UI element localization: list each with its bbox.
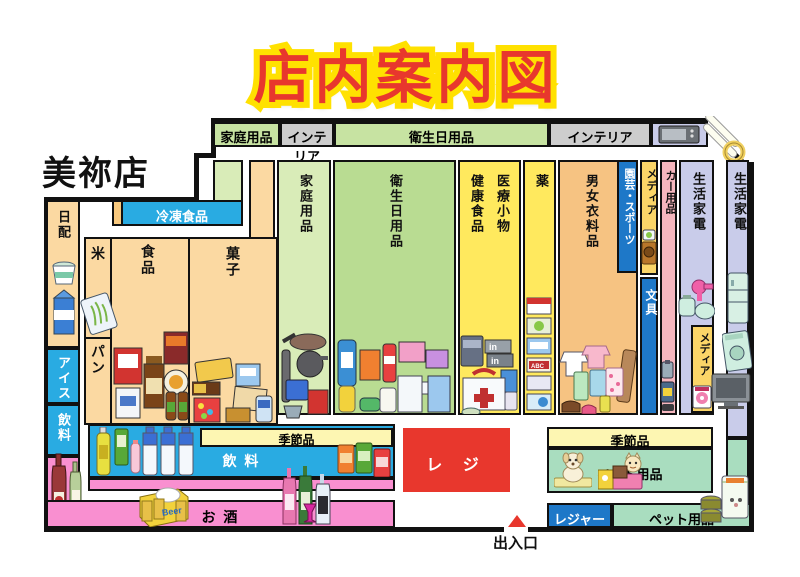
area-clothing-label: 男女衣料品 [585, 174, 598, 249]
area-medical-sundries-label: 医療小物 [496, 174, 509, 234]
beer-crate-icon: Beer [138, 483, 190, 527]
pet-food-icon [700, 474, 750, 526]
area-beverage-shelf-edge [88, 478, 395, 491]
medicine-boxes-icon: ABC [525, 296, 554, 414]
area-garden-sports-label: 園芸・スポーツ [623, 168, 634, 245]
area-home-appliance-right-label: 生活家電 [733, 172, 746, 232]
store-name: 美祢店 [42, 146, 150, 195]
area-food-label: 食品 [141, 244, 155, 276]
area-bread-label: パン [91, 344, 105, 376]
dog-icon [554, 450, 592, 490]
page-title: 店内案内図 店内案内図 店内案内図 [6, 32, 800, 118]
area-media-lower-label: メディア [698, 332, 709, 376]
fridge-icon [727, 272, 749, 324]
area-household-goods-label: 家庭用品 [299, 174, 312, 234]
register-counter: レ ジ [403, 428, 510, 492]
washer-icon [722, 326, 752, 372]
kitchenware-icon [280, 328, 330, 420]
area-media-upper-label: メディア [645, 168, 656, 216]
food-cluster-icon [112, 326, 190, 424]
car-spray-icon [659, 360, 677, 412]
svg-text:in: in [489, 342, 497, 352]
area-frozen-food: 冷凍食品 [121, 200, 243, 226]
area-green-finger [213, 160, 243, 202]
wall-step-v [194, 153, 199, 202]
svg-text:ABC: ABC [531, 364, 545, 370]
shelf-sanitary-top: 衛生日用品 [334, 122, 549, 147]
area-health-food-label: 健康食品 [470, 174, 483, 234]
dairy-icon [50, 258, 78, 338]
shelf-interior-right: インテリア [549, 122, 651, 147]
area-medicine-label: 薬 [535, 174, 548, 189]
area-stationery: 文具 [640, 277, 658, 415]
area-home-appliance-label: 生活家電 [692, 172, 705, 232]
area-leisure-label: レジャー [549, 509, 610, 528]
sake-bottles-icon [280, 466, 334, 526]
area-daily-dairy-label: 日配 [57, 210, 70, 240]
area-stationery-label: 文具 [645, 289, 657, 317]
area-ice-cream-label: アイス [57, 356, 70, 401]
entrance-label: 出入口 [493, 532, 538, 553]
area-orange-finger [249, 160, 275, 239]
area-seasonal-right: 季節品 [547, 427, 713, 448]
cat-icon [598, 452, 650, 492]
small-appliance-icon [677, 278, 715, 320]
area-frozen-food-label: 冷凍食品 [123, 206, 241, 225]
pet-bottles-icon [142, 423, 194, 477]
store-floor-map: 店内案内図 店内案内図 店内案内図 美祢店 家庭用品 インテリア 衛生日用品 イ… [0, 0, 800, 577]
area-car-goods-label: カー用品 [664, 170, 675, 214]
cans-icon [336, 441, 392, 477]
clothes-cluster-icon [558, 342, 638, 414]
area-beverage-left: 飲料 [46, 404, 80, 456]
area-garden-sports: 園芸・スポーツ [617, 160, 638, 273]
shelf-household-top: 家庭用品 [213, 122, 280, 147]
entrance-arrow-icon [508, 515, 526, 527]
tv-icon [710, 372, 752, 410]
area-confectionery-label: 菓子 [226, 246, 240, 278]
camera-icon [641, 228, 657, 272]
title-text: 店内案内図 [6, 32, 800, 114]
register-label: レ ジ [403, 451, 510, 475]
shelf-interior-right-label: インテリア [551, 127, 649, 146]
area-beverage-left-label: 飲料 [57, 413, 70, 443]
hygiene-cluster-icon [336, 332, 452, 414]
area-leisure: レジャー [547, 503, 612, 528]
area-sanitary-goods-label: 衛生日用品 [389, 174, 402, 249]
shelf-sanitary-top-label: 衛生日用品 [336, 127, 547, 146]
area-sake-label: お 酒 [48, 507, 393, 527]
shelf-interior-left: インテリア [280, 122, 334, 147]
snack-cluster-icon [192, 356, 276, 424]
shelf-household-top-label: 家庭用品 [215, 127, 278, 146]
svg-text:in: in [491, 356, 499, 366]
area-rice-label: 米 [91, 246, 105, 262]
area-sake: お 酒 [46, 500, 395, 528]
area-ice-cream: アイス [46, 348, 80, 404]
first-aid-icon: in in [459, 326, 519, 414]
drink-bottles-icon [93, 427, 141, 477]
